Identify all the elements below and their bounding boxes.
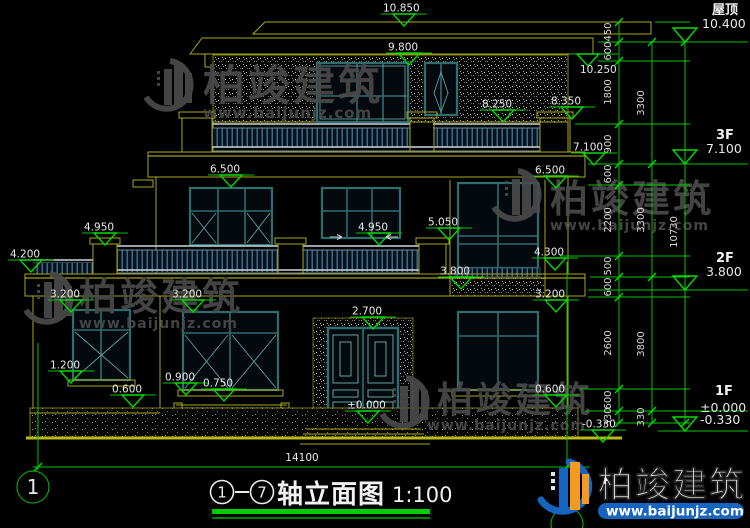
level-marker: 0.600 — [110, 384, 156, 408]
dim-total-height: 10730 — [669, 216, 680, 248]
svg-text:3.200: 3.200 — [50, 289, 80, 301]
svg-text:600: 600 — [603, 164, 614, 183]
title-underline-thick — [212, 509, 430, 514]
svg-text:9.800: 9.800 — [388, 42, 418, 54]
svg-text:4.200: 4.200 — [10, 249, 40, 261]
svg-text:4.950: 4.950 — [84, 222, 114, 234]
svg-text:1.200: 1.200 — [50, 360, 80, 372]
svg-text:10.400: 10.400 — [702, 16, 746, 31]
svg-text:2.700: 2.700 — [352, 306, 382, 318]
railing-3f-balcony — [212, 124, 540, 151]
svg-text:1800: 1800 — [603, 79, 614, 104]
brand-logo-name: 柏竣建筑 — [598, 465, 746, 506]
svg-text:7.100: 7.100 — [706, 141, 742, 156]
svg-text:3300: 3300 — [636, 207, 647, 232]
watermark-brand: 柏竣建筑 — [79, 275, 243, 319]
brand-logo: 柏竣建筑 www.baijunjz.com — [541, 462, 746, 520]
watermark-url: www.baijunjz.com — [203, 104, 372, 122]
svg-text:8.250: 8.250 — [482, 99, 512, 111]
svg-text:0.600: 0.600 — [535, 384, 565, 396]
watermark-url: www.baijunjz.com — [79, 316, 238, 332]
svg-text:4.300: 4.300 — [534, 247, 564, 259]
svg-text:3.800: 3.800 — [706, 264, 742, 279]
svg-text:2600: 2600 — [603, 330, 614, 355]
title-axis-end: 7 — [257, 484, 267, 502]
level-marker: 3.200 — [533, 289, 579, 313]
level-marker: 6.500 — [208, 164, 254, 188]
svg-text:10.250: 10.250 — [580, 64, 617, 76]
watermark-brand: 柏竣建筑 — [550, 177, 714, 221]
watermark-logo-icon — [146, 61, 192, 109]
cad-elevation-drawing: 柏竣建筑 www.baijunjz.com 柏竣建筑 www.baijunjz.… — [0, 0, 750, 528]
window-2f-left — [190, 188, 272, 245]
svg-text:500: 500 — [603, 256, 614, 275]
svg-text:±0.000: ±0.000 — [347, 400, 386, 412]
corbel-left — [133, 180, 153, 187]
brand-logo-url: www.baijunjz.com — [606, 504, 744, 520]
svg-text:3800: 3800 — [636, 331, 647, 356]
svg-text:-0.330: -0.330 — [582, 419, 616, 431]
svg-text:600: 600 — [603, 41, 614, 60]
svg-text:0.600: 0.600 — [112, 384, 142, 396]
svg-text:0.900: 0.900 — [165, 372, 195, 384]
svg-text:4.950: 4.950 — [358, 222, 388, 234]
axis-bubble-1-label: 1 — [27, 475, 40, 499]
svg-text:1F: 1F — [715, 384, 733, 399]
watermark-left: 柏竣建筑 www.baijunjz.com — [26, 274, 243, 332]
watermark-top: 柏竣建筑 www.baijunjz.com — [146, 61, 383, 122]
watermark-url: www.baijunjz.com — [427, 418, 586, 434]
svg-text:6.500: 6.500 — [210, 164, 240, 176]
roof-top-slab — [253, 22, 651, 34]
svg-text:8.350: 8.350 — [551, 96, 581, 108]
floor-label-2f: 2F 3.800 — [673, 251, 742, 290]
level-marker: 4.950 — [82, 222, 128, 246]
svg-text:-0.330: -0.330 — [700, 412, 740, 427]
watermark-brand: 柏竣建筑 — [203, 61, 383, 110]
svg-text:0.750: 0.750 — [203, 378, 233, 390]
svg-text:3300: 3300 — [636, 90, 647, 115]
svg-text:3.200: 3.200 — [535, 289, 565, 301]
floor-label-3f: 3F 7.100 — [673, 128, 742, 164]
svg-text:5.050: 5.050 — [428, 217, 458, 229]
svg-text:600: 600 — [603, 277, 614, 296]
drawing-title: 1 7 轴立面图 1:100 — [211, 479, 453, 518]
svg-text:6.500: 6.500 — [535, 165, 565, 177]
railing-2f-balcony — [33, 246, 419, 274]
dim-chain-inner: 450 600 1800 900 600 2200 500 600 2600 6… — [603, 22, 614, 426]
dim-chain-mid: 3300 3300 3800 330 — [636, 90, 647, 426]
title-axis-start: 1 — [217, 484, 227, 502]
svg-text:330: 330 — [636, 407, 647, 426]
svg-text:900: 900 — [603, 134, 614, 153]
drawing-svg: 柏竣建筑 www.baijunjz.com 柏竣建筑 www.baijunjz.… — [0, 0, 750, 528]
total-width-dim: 14100 — [285, 452, 318, 464]
title-scale: 1:100 — [392, 483, 453, 507]
svg-text:600: 600 — [603, 390, 614, 409]
svg-text:3.200: 3.200 — [172, 289, 202, 301]
window-3f-narrow — [425, 63, 457, 115]
svg-text:2200: 2200 — [603, 207, 614, 232]
watermark-brand: 柏竣建筑 — [437, 380, 593, 421]
title-text: 轴立面图 — [277, 479, 385, 510]
svg-text:3.800: 3.800 — [440, 266, 470, 278]
brand-logo-icon — [541, 462, 589, 511]
svg-text:450: 450 — [603, 22, 614, 41]
svg-text:10.850: 10.850 — [383, 3, 420, 15]
svg-text:7.100: 7.100 — [573, 142, 603, 154]
